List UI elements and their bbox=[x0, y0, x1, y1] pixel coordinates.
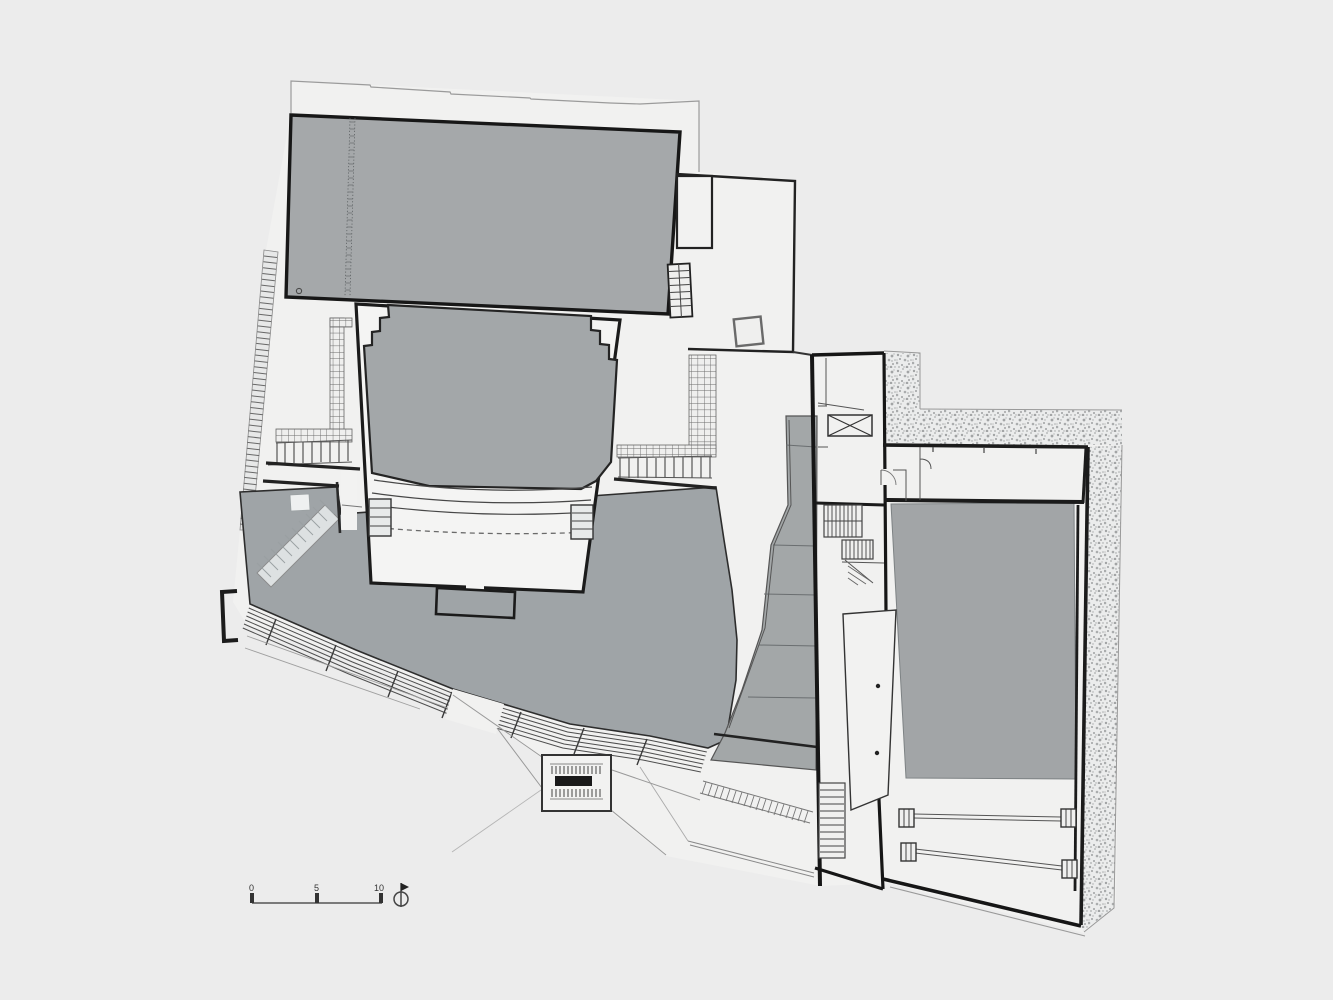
svg-text:10: 10 bbox=[374, 883, 384, 893]
svg-text:0: 0 bbox=[249, 883, 254, 893]
svg-text:5: 5 bbox=[314, 883, 319, 893]
